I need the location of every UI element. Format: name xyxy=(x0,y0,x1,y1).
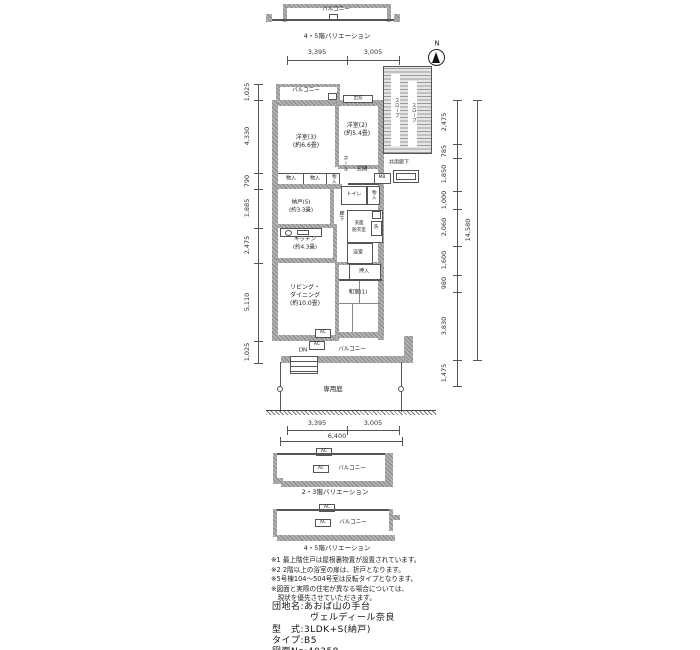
wall xyxy=(273,509,277,537)
laundry-label: 洗 xyxy=(374,226,379,231)
nando-size: (約3.3畳) xyxy=(289,208,313,214)
dim-tick xyxy=(254,84,263,85)
dim-left: 5,110 xyxy=(244,293,251,312)
kitchen-stove xyxy=(297,230,309,235)
dim-right-below: 1,475 xyxy=(441,364,448,383)
dim-right: 2,475 xyxy=(441,113,448,132)
stair-line xyxy=(290,371,318,372)
floorplan-sheet: バルコニー 4・5階バリエーション 3,395 3,005 N 出窓 バルコニー… xyxy=(0,0,700,650)
property-block: 団地名:あおば山の手台 ヴェルディール奈良 型 式:3LDK+S(納戸) タイプ… xyxy=(272,602,395,650)
toilet-label: トイレ xyxy=(346,193,361,198)
dim-tick xyxy=(453,275,462,276)
sink-box xyxy=(372,211,381,219)
dim-tick xyxy=(453,360,462,361)
dim-tick xyxy=(280,437,281,446)
wall xyxy=(330,189,334,224)
dim-tick xyxy=(347,426,348,435)
living-label-2: ダイニング xyxy=(290,293,320,299)
dim-right: 1,600 xyxy=(441,251,448,270)
plan-type-value: B5 xyxy=(304,636,317,646)
dim-tick xyxy=(287,426,288,435)
storage-label: 物入 xyxy=(310,177,320,182)
room2-label: 洋室(2) xyxy=(347,123,368,129)
stair-line xyxy=(290,366,318,367)
balcony-bottom-label: バルコニー xyxy=(338,347,365,353)
note-line: ※図面と実際の住宅が異なる場合については、 xyxy=(271,585,471,595)
north-arrow-icon xyxy=(432,52,440,63)
ac-label: AC xyxy=(314,343,320,348)
dim-bottom-1: 3,395 xyxy=(308,420,327,427)
dim-right-total: 14,580 xyxy=(465,219,472,242)
kitchen-size: (約4.3畳) xyxy=(293,245,317,251)
dim-tick xyxy=(254,341,263,342)
type-value: 3LDK+S(納戸) xyxy=(304,625,371,635)
corridor-label: 廊下 xyxy=(339,211,344,222)
dim-tick xyxy=(473,360,482,361)
variation-caption: 2・3階バリエーション xyxy=(302,489,369,496)
ac-label: AC xyxy=(320,521,326,526)
estate-name-2: ヴェルディール奈良 xyxy=(310,613,395,624)
wall xyxy=(394,14,400,22)
balcony-top-label: バルコニー xyxy=(292,88,319,94)
ac-label: AC xyxy=(320,331,326,336)
dim-tick xyxy=(254,100,263,101)
estate-label: 団地名: xyxy=(272,602,304,612)
tatami-line xyxy=(352,303,353,332)
dim-top-1: 3,395 xyxy=(308,49,327,56)
wall xyxy=(277,258,337,263)
dim-line xyxy=(280,441,403,442)
note-line: ※1 最上階住戸は屋根裏物置が設置されています。 xyxy=(271,556,471,566)
room3-size: (約6.6畳) xyxy=(293,143,319,149)
dn-label: DN xyxy=(299,348,307,354)
dim-tick xyxy=(254,189,263,190)
dim-tick xyxy=(453,100,462,101)
dim-tick xyxy=(453,191,462,192)
type-label: 型 式: xyxy=(272,625,304,635)
wall xyxy=(281,481,393,487)
tatami-line xyxy=(339,303,381,304)
balcony-rail xyxy=(273,453,391,455)
variation-caption: 4・5階バリエーション xyxy=(304,545,371,552)
dim-tick xyxy=(347,56,348,65)
dim-left: 1,885 xyxy=(244,199,251,218)
storage-label: 物入 xyxy=(331,174,336,184)
dim-right: 1,850 xyxy=(441,165,448,184)
wall xyxy=(404,336,413,360)
dim-top-2: 3,005 xyxy=(364,49,383,56)
estate-name-1: あおば山の手台 xyxy=(304,602,371,612)
balcony-label: バルコニー xyxy=(338,466,365,472)
dim-tick xyxy=(254,173,263,174)
ac-label: AC xyxy=(318,467,324,472)
note-line: ※5号棟104〜504号室は反転タイプとなります。 xyxy=(271,575,471,585)
estate-row: 団地名:あおば山の手台 xyxy=(272,602,395,613)
dim-left: 4,330 xyxy=(244,127,251,146)
dim-tick xyxy=(453,386,462,387)
dim-tick xyxy=(453,292,462,293)
kitchen-label: キッチン xyxy=(294,237,316,243)
living-label-1: リビング・ xyxy=(290,285,320,291)
storage-label: 物入 xyxy=(371,190,376,200)
slope-label-1: スロープ xyxy=(394,98,399,118)
dim-tick xyxy=(287,56,288,65)
ground-hatch xyxy=(266,410,436,415)
fence-post xyxy=(277,386,283,392)
dim-bottom-2: 3,005 xyxy=(364,420,383,427)
kitchen-sink xyxy=(285,230,292,236)
dim-tick xyxy=(453,246,462,247)
garden-label: 専用庭 xyxy=(323,386,343,393)
dim-right: 1,000 xyxy=(441,191,448,210)
wall xyxy=(335,332,384,338)
fence-post xyxy=(398,386,404,392)
hanger-box xyxy=(329,14,338,20)
wall xyxy=(391,515,400,520)
dim-tick xyxy=(473,100,482,101)
stair-line xyxy=(290,361,318,362)
north-label: N xyxy=(434,41,439,48)
bay-window-label: 出窓 xyxy=(354,97,363,102)
dim-tick xyxy=(453,209,462,210)
line xyxy=(303,173,304,184)
note-line: ※2 2階以上の浴室の扉は、折戸となります。 xyxy=(271,566,471,576)
dim-tick xyxy=(399,56,400,65)
dim-left: 2,475 xyxy=(244,236,251,255)
washroom-label-1: 洗面 xyxy=(355,222,364,227)
notes-block: ※1 最上階住戸は屋根裏物置が設置されています。 ※2 2階以上の浴室の扉は、折… xyxy=(271,556,471,604)
dim-line xyxy=(287,60,400,61)
line xyxy=(339,173,340,184)
entrance-label: 玄関 xyxy=(356,167,367,173)
dim-tick xyxy=(254,263,263,264)
wall xyxy=(272,100,278,341)
balcony-rail xyxy=(273,509,393,511)
mb-label: MB xyxy=(379,176,386,181)
dim-line xyxy=(477,100,478,360)
room2-size: (約5.4畳) xyxy=(344,131,370,137)
dim-tick xyxy=(399,426,400,435)
wall xyxy=(335,262,339,336)
wall xyxy=(333,224,337,262)
meter-structure-inner xyxy=(396,173,416,180)
japanese-room-label: 和室(1) xyxy=(349,290,368,296)
dim-line xyxy=(457,100,458,386)
bath-label: 浴室 xyxy=(353,251,363,256)
dim-tick xyxy=(402,437,403,446)
plan-type-label: タイプ: xyxy=(272,636,304,646)
nando-label: 納戸(S) xyxy=(292,200,311,206)
hanger-box xyxy=(328,93,337,100)
dim-left: 1,025 xyxy=(244,343,251,362)
dim-tick xyxy=(254,363,263,364)
wall xyxy=(337,84,340,101)
dim-tick xyxy=(254,228,263,229)
oshiire-label: 押入 xyxy=(359,270,369,275)
hall-label: ホール xyxy=(343,156,348,173)
common-corridor-label: 共用廊下 xyxy=(389,161,409,166)
washroom-label-2: 脱衣室 xyxy=(352,229,366,234)
room3-label: 洋室(3) xyxy=(296,135,317,141)
storage-label: 物入 xyxy=(286,177,296,182)
slope-label-2: スロープ xyxy=(411,103,416,123)
dim-right: 785 xyxy=(441,145,448,157)
dim-tick xyxy=(453,158,462,159)
type-row: 型 式:3LDK+S(納戸) xyxy=(272,625,395,636)
dim-left: 790 xyxy=(244,175,251,187)
dim-tick xyxy=(453,144,462,145)
line xyxy=(326,173,327,184)
dim-line xyxy=(258,84,259,363)
balcony-label: バルコニー xyxy=(339,520,366,526)
dim-right: 980 xyxy=(441,277,448,289)
wall xyxy=(389,509,393,531)
wall xyxy=(277,535,395,541)
dim-bottom-total: 6,400 xyxy=(328,433,347,440)
dim-right: 3,830 xyxy=(441,317,448,336)
wall xyxy=(266,14,272,22)
dim-left: 1,025 xyxy=(244,83,251,102)
variation-caption: 4・5階バリエーション xyxy=(304,33,371,40)
dim-right: 2,060 xyxy=(441,218,448,237)
plan-type-row: タイプ:B5 xyxy=(272,636,395,647)
wall xyxy=(276,84,280,101)
living-size: (約10.0畳) xyxy=(290,301,320,307)
balcony-label: バルコニー xyxy=(322,7,349,13)
wall xyxy=(335,103,339,167)
